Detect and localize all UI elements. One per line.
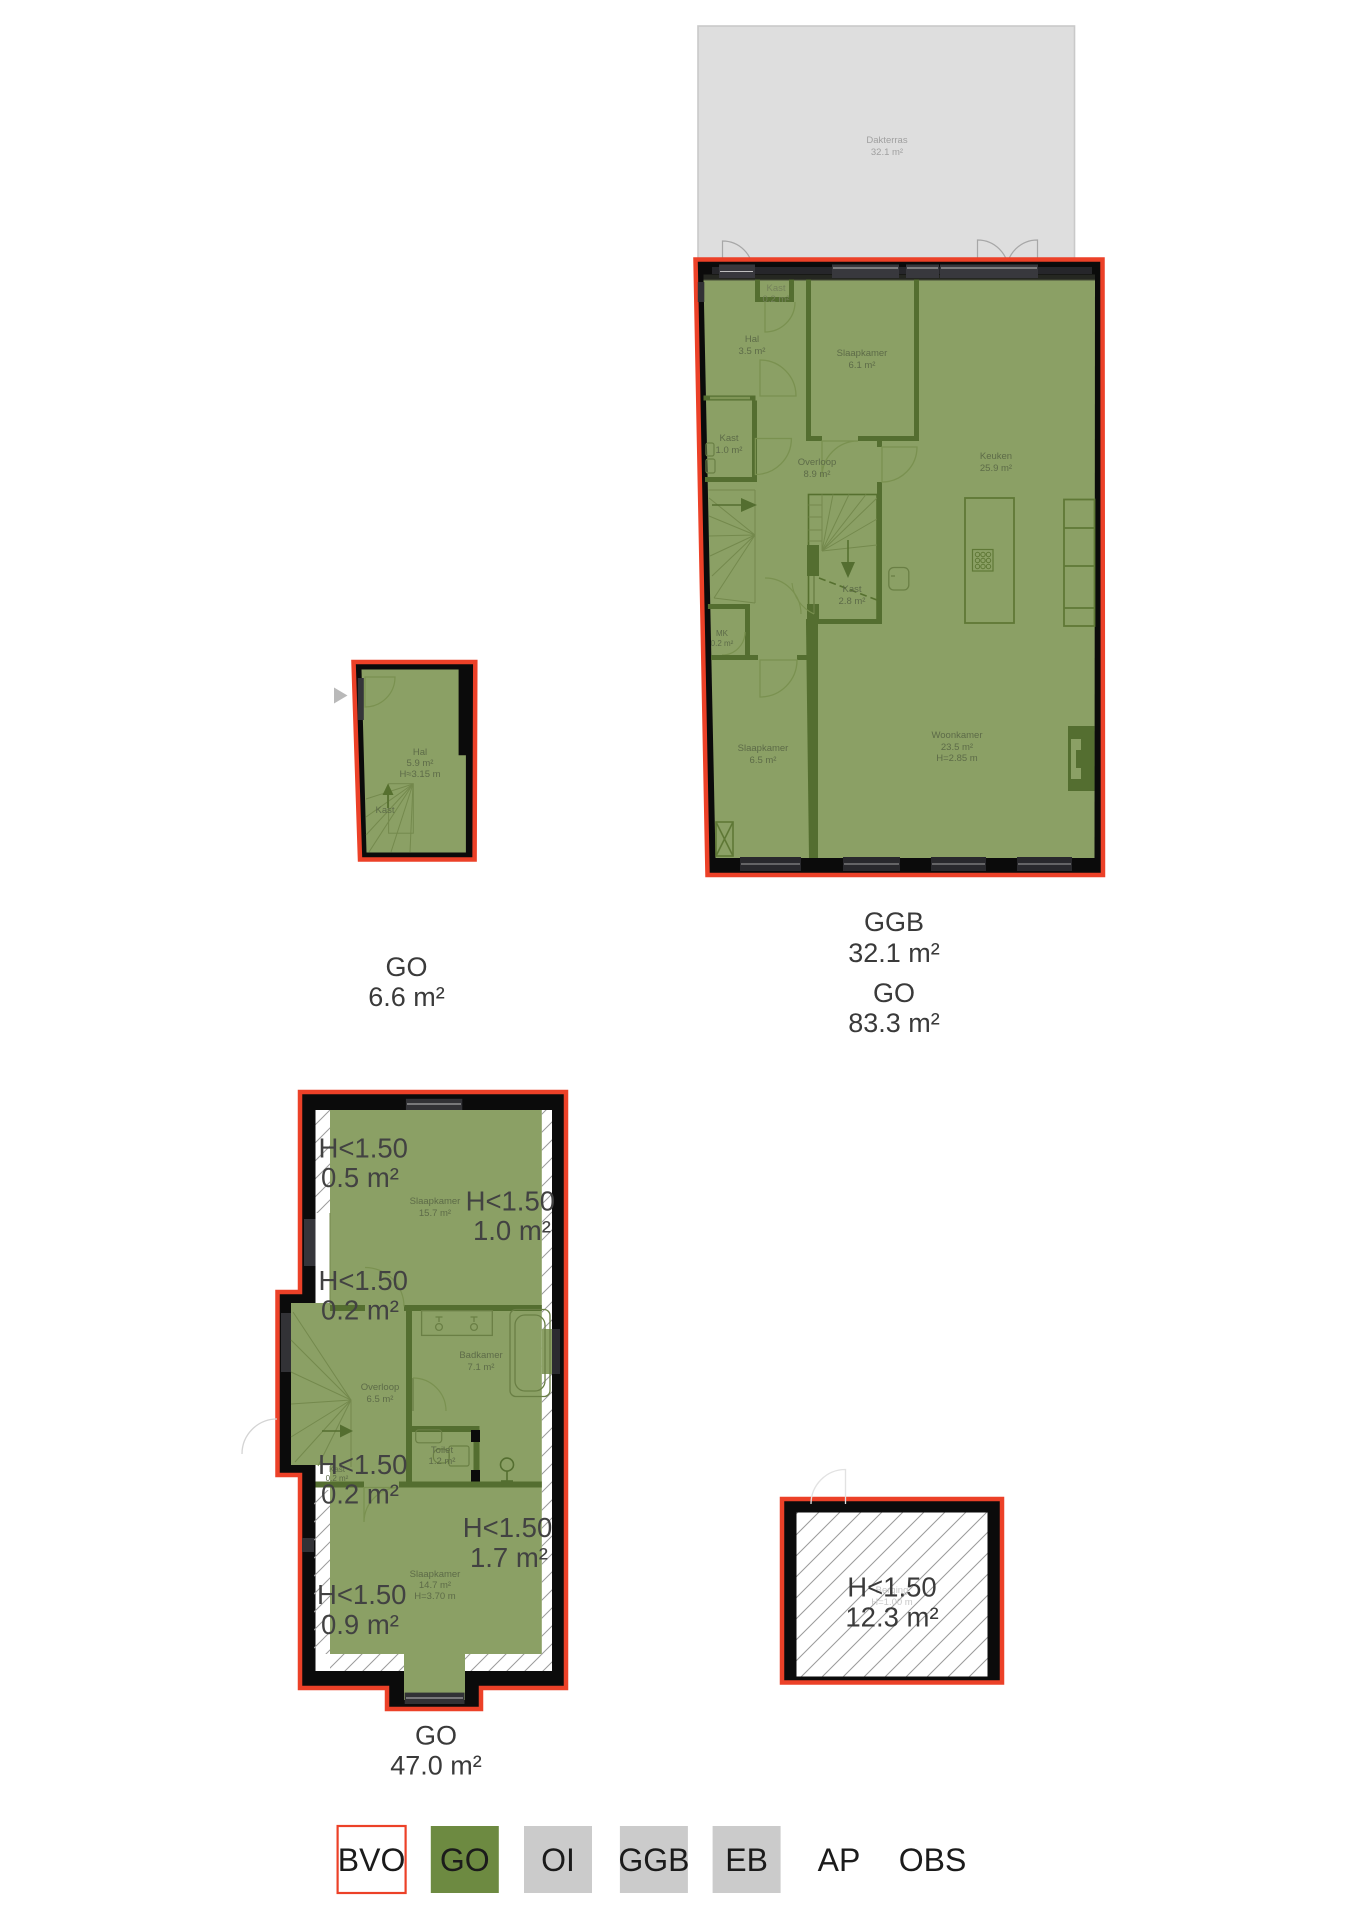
svg-text:0.5 m²: 0.5 m² bbox=[321, 1162, 399, 1193]
svg-text:Slaapkamer: Slaapkamer bbox=[837, 348, 888, 359]
svg-text:7.1 m²: 7.1 m² bbox=[468, 1362, 495, 1373]
svg-text:H≈3.15 m: H≈3.15 m bbox=[399, 769, 440, 780]
svg-text:GO: GO bbox=[415, 1721, 457, 1751]
svg-text:23.5 m²: 23.5 m² bbox=[941, 742, 973, 753]
svg-text:14.7 m²: 14.7 m² bbox=[419, 1580, 451, 1591]
svg-text:Overloop: Overloop bbox=[798, 457, 837, 468]
svg-text:3.5 m²: 3.5 m² bbox=[739, 346, 766, 357]
svg-text:Hal: Hal bbox=[413, 747, 427, 758]
svg-text:Kast: Kast bbox=[842, 584, 861, 595]
svg-text:AP: AP bbox=[818, 1842, 861, 1878]
svg-text:25.9 m²: 25.9 m² bbox=[980, 463, 1012, 474]
svg-text:Keuken: Keuken bbox=[980, 451, 1012, 462]
svg-text:Woonkamer: Woonkamer bbox=[931, 730, 982, 741]
svg-text:Dakterras: Dakterras bbox=[866, 135, 907, 146]
svg-text:6.5 m²: 6.5 m² bbox=[367, 1394, 394, 1405]
svg-text:H<1.50: H<1.50 bbox=[318, 1449, 407, 1480]
svg-text:H=2.85 m: H=2.85 m bbox=[936, 753, 978, 764]
svg-text:GGB: GGB bbox=[864, 907, 924, 937]
svg-text:Slaapkamer: Slaapkamer bbox=[410, 1569, 461, 1580]
svg-text:GGB: GGB bbox=[618, 1842, 689, 1878]
svg-text:MK: MK bbox=[716, 629, 729, 638]
svg-text:0.2 m²: 0.2 m² bbox=[763, 294, 790, 305]
svg-text:H<1.50: H<1.50 bbox=[463, 1512, 552, 1543]
svg-text:Slaapkamer: Slaapkamer bbox=[410, 1196, 461, 1207]
svg-text:GO: GO bbox=[440, 1842, 490, 1878]
svg-text:0.2 m²: 0.2 m² bbox=[711, 639, 734, 648]
svg-text:H<1.50: H<1.50 bbox=[317, 1579, 406, 1610]
svg-text:1.0 m²: 1.0 m² bbox=[473, 1215, 551, 1246]
svg-text:Kast: Kast bbox=[375, 805, 394, 816]
svg-text:Badkamer: Badkamer bbox=[459, 1350, 502, 1361]
svg-text:0.2 m²: 0.2 m² bbox=[321, 1479, 399, 1510]
svg-text:5.9 m²: 5.9 m² bbox=[407, 758, 434, 769]
svg-text:Kast: Kast bbox=[766, 283, 785, 294]
svg-text:Kast: Kast bbox=[719, 433, 738, 444]
svg-text:6.6 m²: 6.6 m² bbox=[368, 982, 445, 1012]
svg-text:15.7 m²: 15.7 m² bbox=[419, 1208, 451, 1219]
svg-text:12.3 m²: 12.3 m² bbox=[845, 1602, 938, 1633]
svg-text:Toilet: Toilet bbox=[431, 1445, 454, 1456]
svg-text:H<1.50: H<1.50 bbox=[466, 1186, 555, 1217]
svg-text:83.3 m²: 83.3 m² bbox=[848, 1008, 940, 1038]
svg-text:6.5 m²: 6.5 m² bbox=[750, 755, 777, 766]
svg-text:Slaapkamer: Slaapkamer bbox=[738, 743, 789, 754]
svg-text:0.9 m²: 0.9 m² bbox=[321, 1609, 399, 1640]
svg-text:EB: EB bbox=[725, 1842, 768, 1878]
svg-text:Hal: Hal bbox=[745, 334, 759, 345]
svg-text:1.7 m²: 1.7 m² bbox=[470, 1542, 548, 1573]
svg-text:BVO: BVO bbox=[338, 1842, 406, 1878]
svg-text:1.0 m²: 1.0 m² bbox=[716, 445, 743, 456]
svg-text:0.2 m²: 0.2 m² bbox=[321, 1295, 399, 1326]
svg-text:47.0 m²: 47.0 m² bbox=[390, 1751, 482, 1781]
svg-text:H<1.50: H<1.50 bbox=[319, 1133, 408, 1164]
svg-text:OI: OI bbox=[541, 1842, 575, 1878]
svg-text:GO: GO bbox=[385, 952, 427, 982]
svg-text:1.2 m²: 1.2 m² bbox=[429, 1456, 456, 1467]
svg-text:8.9 m²: 8.9 m² bbox=[804, 469, 831, 480]
svg-text:2.8 m²: 2.8 m² bbox=[839, 596, 866, 607]
svg-text:H<1.50: H<1.50 bbox=[319, 1265, 408, 1296]
svg-text:32.1 m²: 32.1 m² bbox=[848, 938, 940, 968]
svg-text:GO: GO bbox=[873, 978, 915, 1008]
svg-text:OBS: OBS bbox=[899, 1842, 967, 1878]
svg-text:6.1 m²: 6.1 m² bbox=[849, 360, 876, 371]
svg-text:H=3.70 m: H=3.70 m bbox=[414, 1591, 456, 1602]
svg-text:32.1 m²: 32.1 m² bbox=[871, 147, 903, 158]
svg-text:Overloop: Overloop bbox=[361, 1382, 400, 1393]
svg-text:H<1.50: H<1.50 bbox=[847, 1572, 936, 1603]
